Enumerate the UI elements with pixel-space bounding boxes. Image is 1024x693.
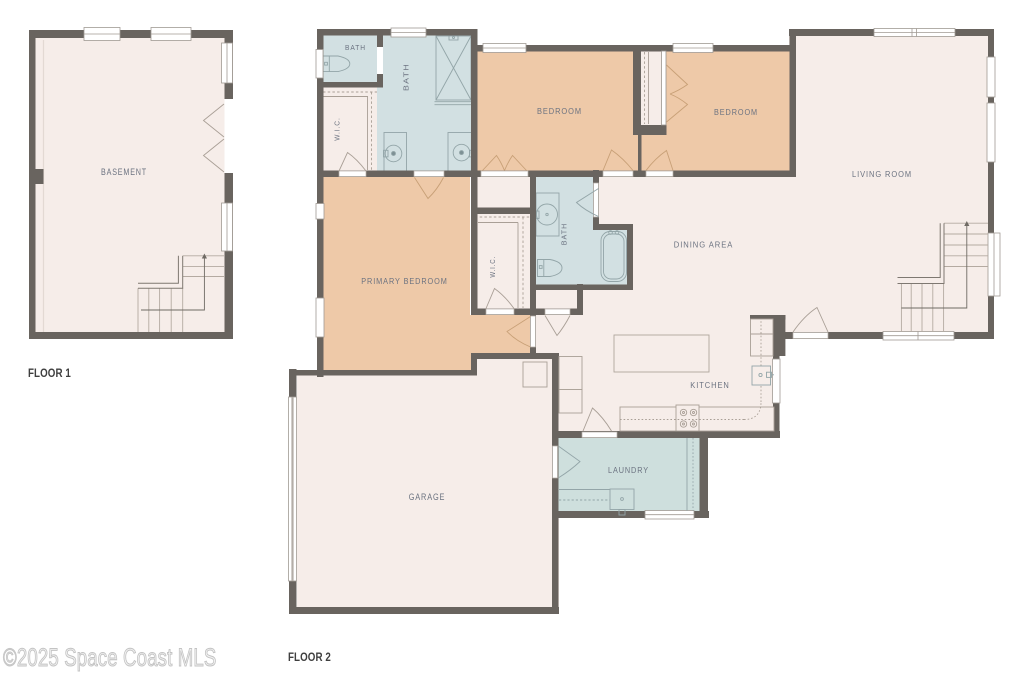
svg-text:©2025 Space Coast MLS: ©2025 Space Coast MLS (3, 643, 216, 671)
svg-text:GARAGE: GARAGE (409, 492, 446, 502)
svg-text:LIVING ROOM: LIVING ROOM (852, 170, 912, 179)
svg-text:DINING AREA: DINING AREA (674, 241, 734, 250)
svg-text:FLOOR 2: FLOOR 2 (288, 651, 331, 664)
svg-text:BEDROOM: BEDROOM (537, 107, 582, 116)
svg-text:LAUNDRY: LAUNDRY (608, 466, 649, 475)
svg-text:BATH: BATH (345, 45, 366, 52)
svg-text:FLOOR 1: FLOOR 1 (28, 367, 71, 380)
svg-text:PRIMARY BEDROOM: PRIMARY BEDROOM (361, 277, 448, 286)
svg-text:BATH: BATH (562, 223, 569, 246)
svg-text:W.I.C.: W.I.C. (335, 117, 342, 141)
svg-text:KITCHEN: KITCHEN (690, 381, 730, 390)
svg-text:BEDROOM: BEDROOM (714, 108, 758, 117)
svg-text:W.I.C.: W.I.C. (490, 256, 497, 278)
svg-text:BASEMENT: BASEMENT (101, 167, 147, 177)
svg-text:BATH: BATH (404, 63, 411, 91)
